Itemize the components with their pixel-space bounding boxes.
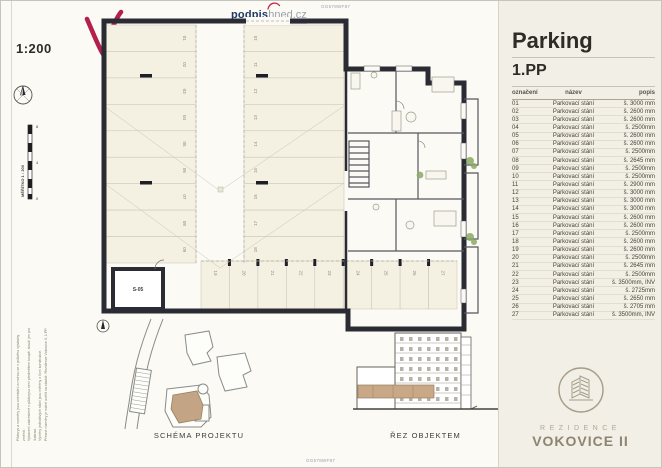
fine-print-line: Vybavení zakreslené v půdorysu není před… (27, 323, 38, 441)
stall-number: 03 (182, 89, 187, 95)
divider (512, 86, 655, 87)
table-cell: Parkovací stání (538, 117, 609, 123)
table-row: 09Parkovací stáníš. 2500mm (512, 165, 655, 173)
table-cell: š. 2500mm (609, 166, 655, 172)
building-section-svg (353, 329, 498, 427)
table-row: 15Parkovací stáníš. 2600 mm (512, 214, 655, 222)
table-row: 10Parkovací stáníš. 2500mm (512, 173, 655, 181)
stall-number: 23 (327, 270, 332, 276)
table-cell: Parkovací stání (538, 190, 609, 196)
stall-group-right: 101112131415161718 (244, 25, 344, 263)
stall-post (256, 259, 259, 266)
parking-stall (229, 261, 257, 309)
table-cell: 19 (512, 247, 538, 253)
table-cell: 11 (512, 182, 538, 188)
table-cell: Parkovací stání (538, 206, 609, 212)
table-cell: Parkovací stání (538, 280, 609, 286)
signature-swirl-icon (267, 1, 281, 10)
stall-post (399, 259, 402, 266)
table-row: 22Parkovací stáníš. 2500mm (512, 271, 655, 279)
stall-number: 18 (253, 247, 258, 253)
table-row: 07Parkovací stáníš. 2500mm (512, 149, 655, 157)
table-cell: Parkovací stání (538, 182, 609, 188)
svg-text:MĚŘÍTKO 1 : 200: MĚŘÍTKO 1 : 200 (20, 164, 25, 197)
stall-number: 13 (253, 115, 258, 121)
table-cell: Parkovací stání (538, 263, 609, 269)
table-cell: Parkovací stání (538, 247, 609, 253)
stall-number: 11 (253, 62, 258, 67)
table-cell: 09 (512, 166, 538, 172)
parking-stall (244, 104, 344, 130)
plant-icons (417, 157, 477, 245)
stall-number: 06 (182, 168, 187, 174)
table-cell: 22 (512, 272, 538, 278)
table-cell: 23 (512, 280, 538, 286)
table-row: 12Parkovací stáníš. 3000 mm (512, 190, 655, 198)
technical-room: S-05 (113, 260, 164, 309)
table-cell: 25 (512, 296, 538, 302)
table-row: 06Parkovací stáníš. 2600 mm (512, 141, 655, 149)
table-row: 26Parkovací stáníš. 2705 mm (512, 304, 655, 312)
table-cell: Parkovací stání (538, 133, 609, 139)
parking-stall (286, 261, 314, 309)
table-cell: 18 (512, 239, 538, 245)
parking-stall (244, 131, 344, 157)
table-cell: 26 (512, 304, 538, 310)
table-cell: 02 (512, 109, 538, 115)
table-row: 16Parkovací stáníš. 2600 mm (512, 222, 655, 230)
parking-stall (244, 210, 344, 236)
stall-post (285, 259, 288, 266)
divider (512, 57, 655, 58)
stall-post (427, 259, 430, 266)
header-desc: popis (609, 90, 655, 96)
table-header-row: označení název popis (512, 89, 655, 100)
table-cell: š. 2725mm (609, 288, 655, 294)
table-row: 19Parkovací stáníš. 2600 mm (512, 247, 655, 255)
parking-table-body: 01Parkovací stáníš. 3000 mm02Parkovací s… (512, 100, 655, 320)
site-schematic-svg (89, 317, 309, 429)
fine-print: Půdorys a rozměry jsou orientační a moho… (16, 323, 49, 441)
table-cell: Parkovací stání (538, 125, 609, 131)
table-cell: Parkovací stání (538, 312, 609, 318)
scale-label: 1:200 (16, 41, 52, 56)
floor-plan-svg: 010203040506070809 101112131415161718 19… (96, 11, 498, 333)
table-cell: š. 2500mm (609, 149, 655, 155)
stall-post (313, 259, 316, 266)
stall-post (370, 259, 373, 266)
stall-group-bottom: 192021222324252627 (201, 259, 457, 309)
header-name: název (538, 90, 609, 96)
svg-text:4: 4 (36, 160, 39, 165)
table-cell: š. 2500mm (609, 125, 655, 131)
table-cell: Parkovací stání (538, 231, 609, 237)
table-cell: š. 3000 mm (609, 101, 655, 107)
table-cell: š. 2600 mm (609, 133, 655, 139)
table-cell: Parkovací stání (538, 223, 609, 229)
table-cell: Parkovací stání (538, 255, 609, 261)
table-cell: š. 2645 mm (609, 263, 655, 269)
document-code-top: GG578WF87 (321, 4, 350, 9)
table-cell: 12 (512, 190, 538, 196)
table-cell: Parkovací stání (538, 215, 609, 221)
stall-number: 02 (182, 62, 187, 68)
table-cell: Parkovací stání (538, 158, 609, 164)
table-cell: š. 3000 mm (609, 190, 655, 196)
stall-number: 27 (441, 270, 446, 276)
table-cell: Parkovací stání (538, 288, 609, 294)
highlighted-floor (358, 385, 434, 398)
table-row: 03Parkovací stáníš. 2600 mm (512, 116, 655, 124)
table-row: 27Parkovací stáníš. 3500mm, INV (512, 312, 655, 320)
table-cell: š. 2500mm (609, 174, 655, 180)
fine-print-line: Přesné rozměry je nutné ověřit na stavbě… (44, 323, 50, 441)
brand-line1: REZIDENCE (498, 425, 662, 432)
brand-logo-icon (554, 363, 608, 417)
stall-number: 21 (270, 270, 275, 276)
table-row: 01Parkovací stáníš. 3000 mm (512, 100, 655, 108)
parking-stall (244, 51, 344, 77)
parking-stall (244, 25, 344, 51)
header-id: označení (512, 90, 538, 96)
table-row: 24Parkovací stáníš. 2725mm (512, 287, 655, 295)
table-cell: Parkovací stání (538, 198, 609, 204)
table-cell: Parkovací stání (538, 304, 609, 310)
table-row: 04Parkovací stáníš. 2500mm (512, 124, 655, 132)
fine-print-line: Půdorys a rozměry jsou orientační a moho… (16, 323, 27, 441)
table-row: 08Parkovací stáníš. 2645 mm (512, 157, 655, 165)
parking-stall (315, 261, 343, 309)
table-cell: š. 3000 mm (609, 206, 655, 212)
document-code-bottom: GG578WF87 (306, 458, 335, 463)
brand-block: REZIDENCE VOKOVICE II (498, 363, 662, 449)
stall-number: 20 (241, 270, 246, 276)
table-row: 20Parkovací stáníš. 2500mm (512, 255, 655, 263)
table-cell: š. 2600 mm (609, 247, 655, 253)
section-label: ŘEZ OBJEKTEM (353, 431, 498, 440)
table-cell: Parkovací stání (538, 239, 609, 245)
margin-divider (11, 1, 12, 468)
table-row: 21Parkovací stáníš. 2645 mm (512, 263, 655, 271)
compass-icon (11, 83, 35, 107)
parking-stall (372, 261, 400, 309)
parking-stall (201, 261, 229, 309)
parking-stall (400, 261, 428, 309)
table-cell: 01 (512, 101, 538, 107)
stall-number: 26 (412, 270, 417, 276)
table-cell: š. 2600 mm (609, 109, 655, 115)
table-cell: š. 3000 mm (609, 198, 655, 204)
scale-bar: 8 4 0 MĚŘÍTKO 1 : 200 (11, 119, 41, 205)
table-cell: 21 (512, 263, 538, 269)
table-cell: š. 2500mm (609, 255, 655, 261)
plan-sheet-page: 1:200 8 4 0 MĚŘÍTKO 1 : 200 Půdorys a ro… (0, 0, 662, 468)
stall-number: 25 (384, 270, 389, 276)
stall-number: 19 (213, 270, 218, 276)
stall-number: 01 (182, 36, 187, 42)
stall-number: 08 (182, 221, 187, 227)
table-cell: Parkovací stání (538, 174, 609, 180)
room-label: S-05 (133, 287, 144, 293)
table-cell: š. 2500mm (609, 231, 655, 237)
highlighted-building (171, 391, 203, 423)
table-cell: Parkovací stání (538, 101, 609, 107)
table-cell: š. 2650 mm (609, 296, 655, 302)
table-cell: Parkovací stání (538, 109, 609, 115)
stall-number: 17 (253, 220, 258, 226)
table-cell: š. 3500mm, INV (609, 312, 655, 318)
parking-table: označení název popis 01Parkovací stáníš.… (512, 89, 655, 320)
table-cell: 10 (512, 174, 538, 180)
table-cell: 05 (512, 133, 538, 139)
table-row: 25Parkovací stáníš. 2650 mm (512, 295, 655, 303)
table-cell: š. 3500mm, INV (609, 280, 655, 286)
page-title: Parking (512, 28, 593, 54)
table-cell: š. 2600 mm (609, 117, 655, 123)
table-cell: 04 (512, 125, 538, 131)
table-cell: 24 (512, 288, 538, 294)
stall-number: 10 (253, 35, 258, 41)
table-cell: š. 2900 mm (609, 182, 655, 188)
svg-text:8: 8 (36, 124, 39, 129)
table-row: 18Parkovací stáníš. 2600 mm (512, 238, 655, 246)
north-arrow-icon (97, 320, 109, 332)
table-row: 13Parkovací stáníš. 3000 mm (512, 198, 655, 206)
stall-number: 05 (182, 141, 187, 147)
parking-stall (429, 261, 457, 309)
stall-post (342, 259, 345, 266)
table-row: 05Parkovací stáníš. 2600 mm (512, 133, 655, 141)
stall-number: 24 (355, 270, 360, 276)
parking-stall (258, 261, 286, 309)
table-cell: 16 (512, 223, 538, 229)
table-cell: 17 (512, 231, 538, 237)
brand-line2: VOKOVICE II (498, 433, 662, 449)
table-cell: Parkovací stání (538, 149, 609, 155)
stall-number: 12 (253, 88, 258, 94)
table-row: 02Parkovací stáníš. 2600 mm (512, 108, 655, 116)
table-cell: š. 2600 mm (609, 223, 655, 229)
table-cell: 03 (512, 117, 538, 123)
table-cell: š. 2500mm (609, 272, 655, 278)
svg-text:0: 0 (36, 196, 39, 201)
floor-subtitle: 1.PP (512, 62, 547, 80)
table-cell: 07 (512, 149, 538, 155)
table-row: 14Parkovací stáníš. 3000 mm (512, 206, 655, 214)
parking-stall (343, 261, 371, 309)
table-cell: Parkovací stání (538, 166, 609, 172)
stall-number: 07 (182, 194, 187, 200)
table-cell: 15 (512, 215, 538, 221)
table-cell: š. 2645 mm (609, 158, 655, 164)
table-cell: Parkovací stání (538, 272, 609, 278)
table-cell: š. 2705 mm (609, 304, 655, 310)
table-row: 11Parkovací stáníš. 2900 mm (512, 181, 655, 189)
table-cell: š. 2600 mm (609, 239, 655, 245)
table-cell: 06 (512, 141, 538, 147)
table-cell: Parkovací stání (538, 296, 609, 302)
parking-stall (244, 184, 344, 210)
stall-group-left: 010203040506070809 (106, 25, 196, 263)
table-cell: 27 (512, 312, 538, 318)
stall-number: 09 (182, 247, 187, 253)
stall-number: 22 (298, 270, 303, 276)
table-cell: Parkovací stání (538, 141, 609, 147)
table-cell: š. 2600 mm (609, 141, 655, 147)
stall-number: 04 (182, 115, 187, 121)
stall-number: 15 (253, 167, 258, 173)
table-cell: 20 (512, 255, 538, 261)
table-cell: 13 (512, 198, 538, 204)
table-row: 17Parkovací stáníš. 2500mm (512, 230, 655, 238)
stall-number: 16 (253, 194, 258, 200)
parking-stall (244, 78, 344, 104)
table-row: 23Parkovací stáníš. 3500mm, INV (512, 279, 655, 287)
table-cell: 14 (512, 206, 538, 212)
table-cell: š. 2600 mm (609, 215, 655, 221)
schema-label: SCHÉMA PROJEKTU (89, 431, 309, 440)
stall-number: 14 (253, 141, 258, 147)
parking-stall (244, 157, 344, 183)
table-cell: 08 (512, 158, 538, 164)
